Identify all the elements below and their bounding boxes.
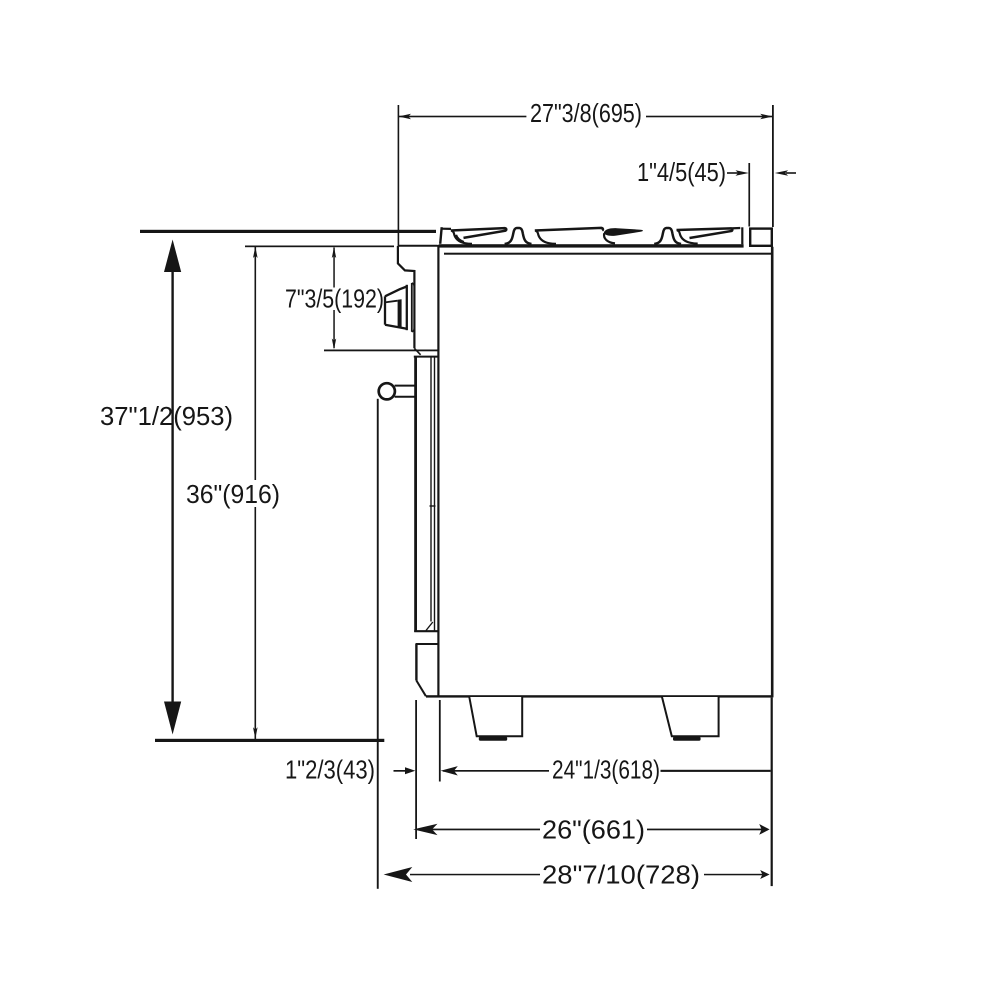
svg-text:37"1/2(953): 37"1/2(953) [100, 401, 233, 431]
svg-text:28"7/10(728): 28"7/10(728) [542, 860, 700, 890]
svg-text:24"1/3(618): 24"1/3(618) [552, 755, 660, 785]
svg-text:7"3/5(192): 7"3/5(192) [285, 284, 384, 314]
svg-text:36"(916): 36"(916) [186, 479, 280, 509]
svg-text:27"3/8(695): 27"3/8(695) [530, 98, 642, 128]
svg-text:1"2/3(43): 1"2/3(43) [285, 755, 375, 785]
svg-text:26"(661): 26"(661) [542, 815, 645, 845]
svg-text:1"4/5(45): 1"4/5(45) [637, 157, 726, 187]
